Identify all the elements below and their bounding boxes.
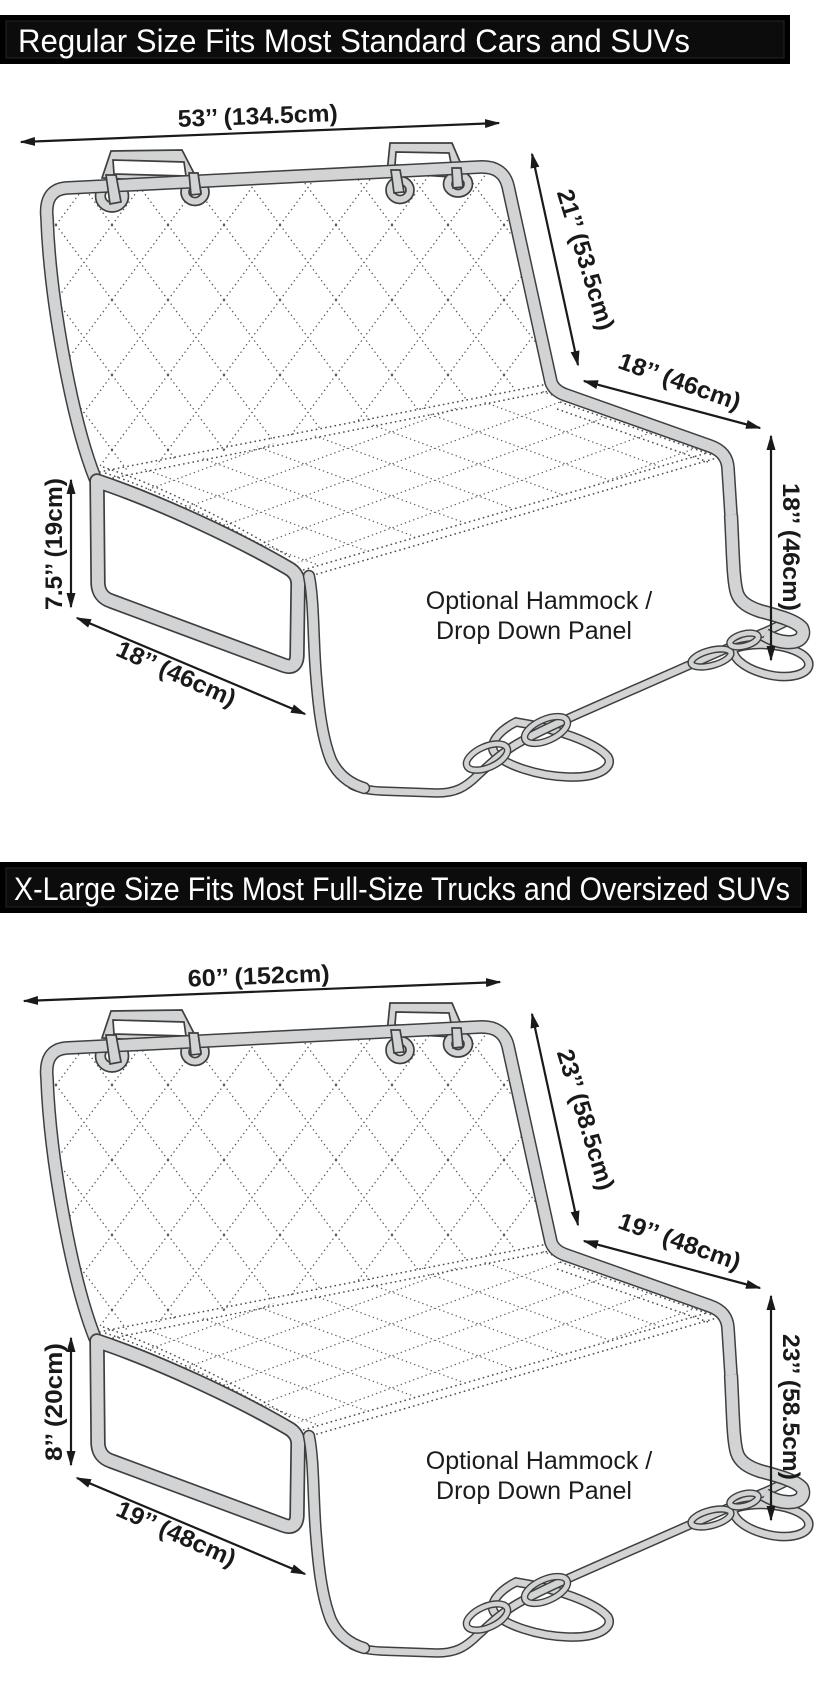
svg-text:60’’ (152cm): 60’’ (152cm) [187,960,330,992]
svg-text:Regular Size Fits Most Standar: Regular Size Fits Most Standard Cars and… [18,23,690,59]
svg-text:21’’ (53.5cm): 21’’ (53.5cm) [551,186,620,334]
svg-text:53’’ (134.5cm): 53’’ (134.5cm) [177,100,338,133]
svg-text:Optional Hammock /: Optional Hammock / [426,587,653,615]
svg-text:7.5’’ (19cm): 7.5’’ (19cm) [41,478,68,610]
svg-text:Drop Down Panel: Drop Down Panel [436,1477,632,1505]
svg-text:23’’ (58.5cm): 23’’ (58.5cm) [551,1046,620,1194]
svg-text:18’’ (46cm): 18’’ (46cm) [777,483,804,611]
svg-text:X-Large Size Fits Most Full-Si: X-Large Size Fits Most Full-Size Trucks … [14,871,790,907]
svg-text:23’’ (58.5cm): 23’’ (58.5cm) [777,1334,804,1480]
svg-text:8’’ (20cm): 8’’ (20cm) [41,1343,68,1461]
svg-text:Optional Hammock /: Optional Hammock / [426,1447,653,1475]
svg-text:Drop Down Panel: Drop Down Panel [436,617,632,645]
